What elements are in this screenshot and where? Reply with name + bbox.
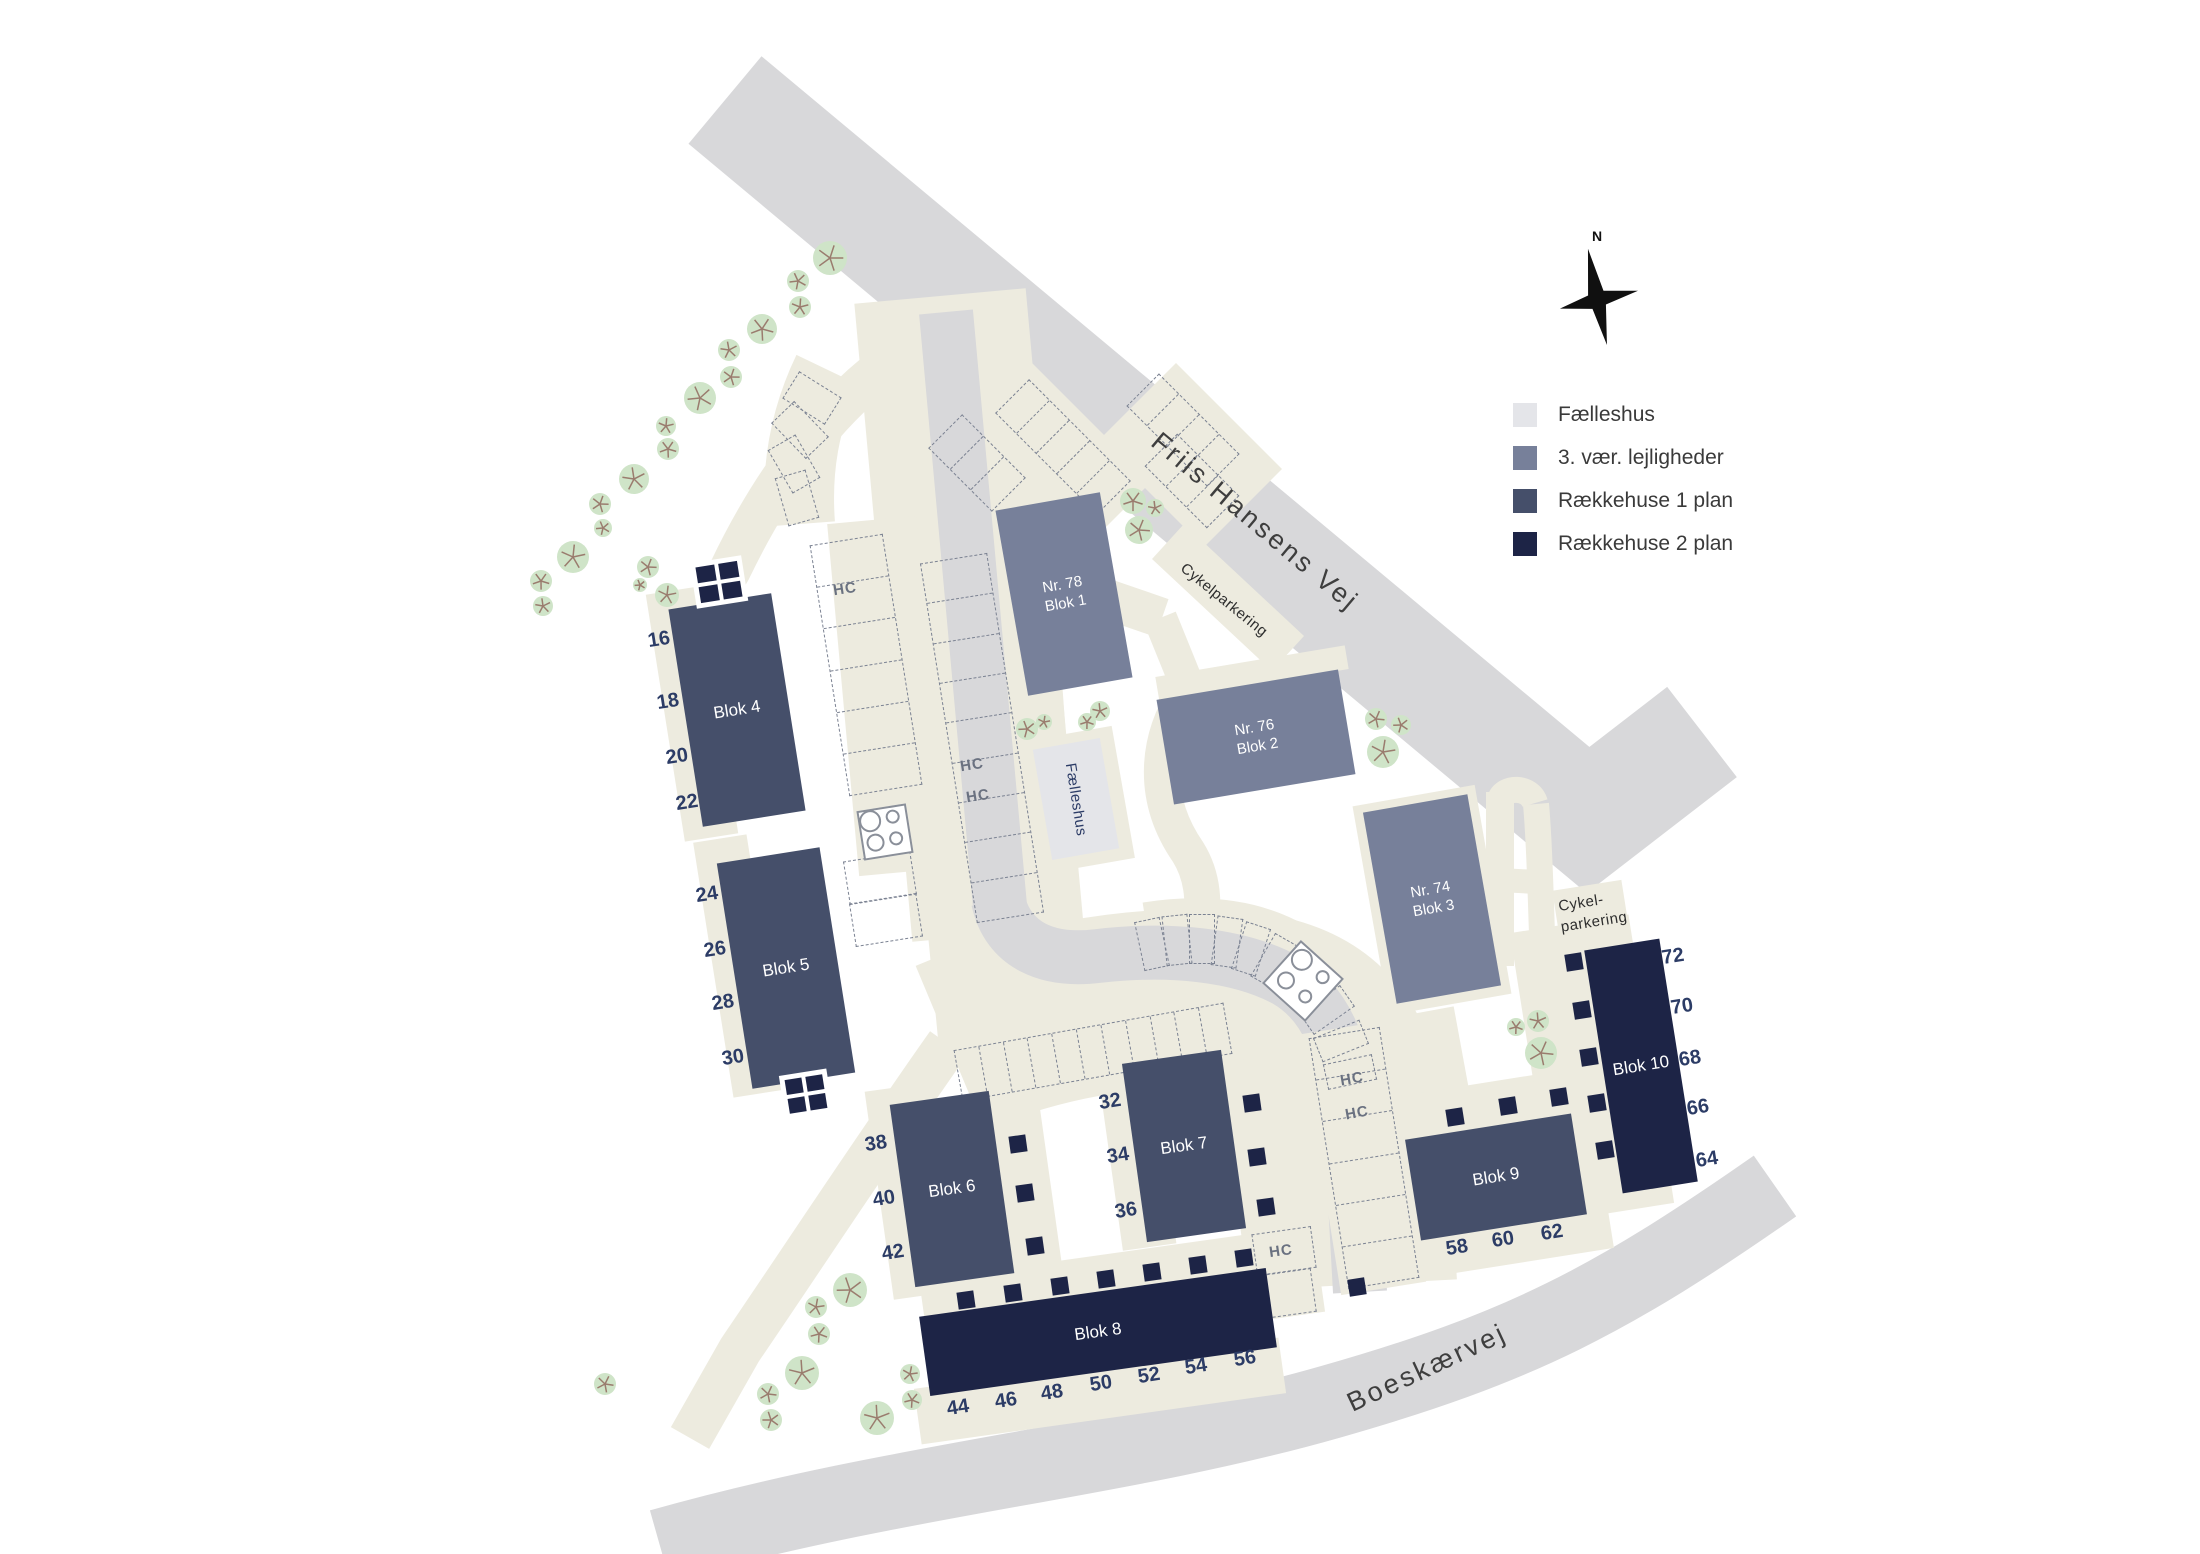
house-number: 68 [1677, 1046, 1703, 1072]
legend-label: Rækkehuse 2 plan [1558, 532, 1733, 556]
house-number: 22 [674, 790, 700, 816]
house-number: 54 [1183, 1354, 1209, 1380]
bike-parking-label: Cykelparkering [1177, 560, 1271, 641]
house-number: 16 [646, 627, 672, 653]
house-number: 64 [1694, 1147, 1720, 1173]
house-number: 20 [664, 744, 690, 770]
street-label-boeskaervej: Boeskærvej [1342, 1317, 1511, 1418]
legend-row: Rækkehuse 1 plan [1513, 489, 1733, 513]
house-number: 58 [1444, 1235, 1470, 1261]
hc-parking-label: HC [965, 786, 991, 806]
hc-parking-label: HC [1344, 1103, 1370, 1124]
house-number: 28 [710, 990, 736, 1016]
legend-swatch [1513, 489, 1537, 513]
house-number: 60 [1490, 1227, 1516, 1253]
legend-swatch [1513, 446, 1537, 470]
house-number: 34 [1105, 1143, 1131, 1169]
house-number: 38 [863, 1131, 889, 1157]
house-number: 72 [1660, 944, 1686, 970]
street-label-friis-hansens-vej: Friis Hansens Vej [1145, 426, 1365, 618]
hc-parking-label: HC [832, 579, 858, 599]
house-number: 44 [945, 1395, 971, 1421]
site-plan-map: Nr. 78Blok 1Nr. 76Blok 2Nr. 74Blok 3Blok… [0, 0, 2200, 1554]
hc-parking-label: HC [1339, 1069, 1365, 1090]
house-number: 26 [702, 937, 728, 963]
house-number: 56 [1232, 1346, 1258, 1372]
house-number: 24 [694, 882, 720, 908]
house-number: 66 [1685, 1095, 1711, 1121]
legend-label: Fælleshus [1558, 403, 1655, 427]
house-number: 18 [655, 689, 681, 715]
hc-parking-label: HC [1268, 1241, 1294, 1261]
house-number: 48 [1039, 1380, 1065, 1406]
compass-star-icon [1537, 228, 1657, 368]
legend-row: Rækkehuse 2 plan [1513, 532, 1733, 556]
legend-row: 3. vær. lejligheder [1513, 446, 1733, 470]
house-number: 42 [880, 1240, 906, 1266]
legend-label: Rækkehuse 1 plan [1558, 489, 1733, 513]
bike-parking-label-line1: Cykel- [1557, 891, 1605, 915]
house-number: 50 [1088, 1371, 1114, 1397]
house-number: 30 [720, 1045, 746, 1071]
labels-layer: 1618202224262830384042323436444648505254… [0, 0, 2200, 1554]
house-number: 32 [1097, 1089, 1123, 1115]
house-number: 46 [993, 1388, 1019, 1414]
legend: Fælleshus3. vær. lejlighederRækkehuse 1 … [1513, 403, 1733, 556]
legend-row: Fælleshus [1513, 403, 1733, 427]
house-number: 36 [1113, 1198, 1139, 1224]
compass: N [1537, 228, 1657, 368]
house-number: 62 [1539, 1220, 1565, 1246]
house-number: 70 [1669, 994, 1695, 1020]
house-number: 40 [871, 1186, 897, 1212]
legend-swatch [1513, 403, 1537, 427]
house-number: 52 [1136, 1363, 1162, 1389]
legend-label: 3. vær. lejligheder [1558, 446, 1724, 470]
hc-parking-label: HC [959, 755, 985, 775]
legend-swatch [1513, 532, 1537, 556]
